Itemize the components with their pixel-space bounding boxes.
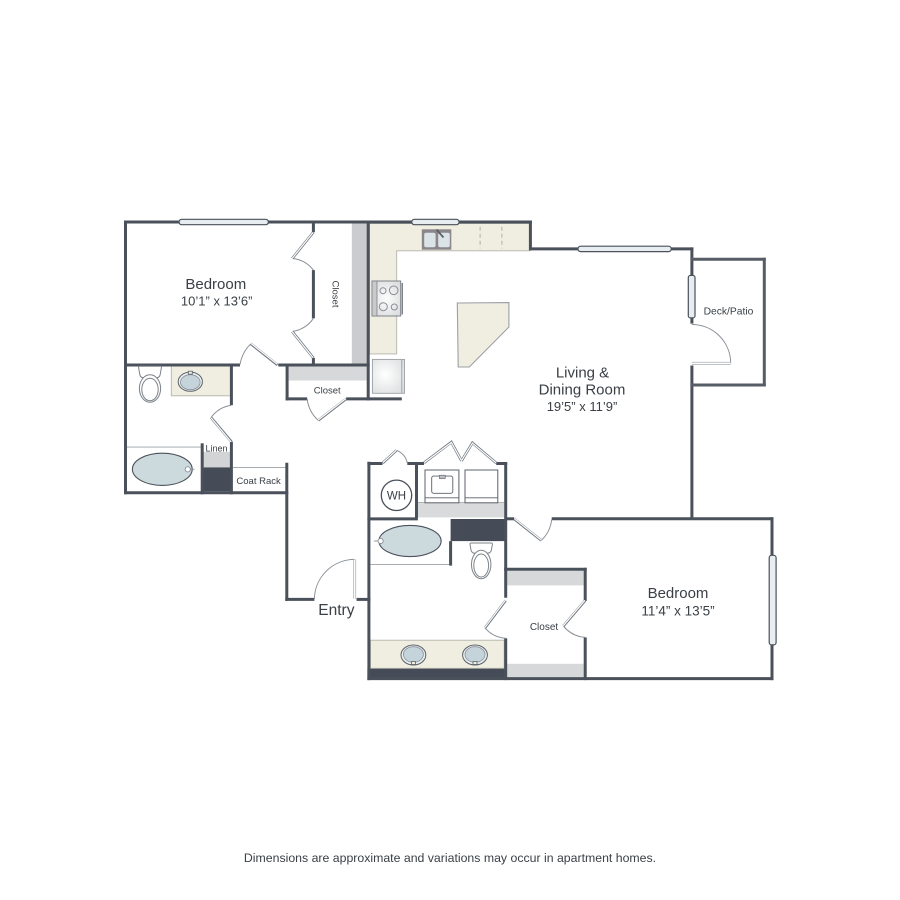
svg-text:Bedroom: Bedroom: [185, 276, 246, 293]
svg-text:Entry: Entry: [318, 602, 354, 619]
svg-text:Closet: Closet: [314, 385, 341, 396]
svg-text:10’1” x 13’6”: 10’1” x 13’6”: [181, 294, 253, 309]
svg-text:WH: WH: [387, 491, 406, 503]
svg-text:Dining Room: Dining Room: [539, 382, 626, 399]
svg-text:19’5” x 11’9”: 19’5” x 11’9”: [547, 399, 618, 414]
svg-text:Closet: Closet: [330, 281, 341, 308]
svg-text:Bedroom: Bedroom: [648, 585, 709, 602]
svg-text:Coat Rack: Coat Rack: [236, 476, 281, 487]
svg-text:Deck/Patio: Deck/Patio: [704, 307, 754, 318]
svg-text:Living &: Living &: [556, 365, 609, 382]
svg-text:Linen: Linen: [205, 443, 227, 453]
svg-text:Closet: Closet: [530, 622, 559, 633]
svg-text:11’4” x 13’5”: 11’4” x 13’5”: [641, 604, 714, 619]
svg-text:Dimensions are approximate and: Dimensions are approximate and variation…: [244, 851, 656, 865]
